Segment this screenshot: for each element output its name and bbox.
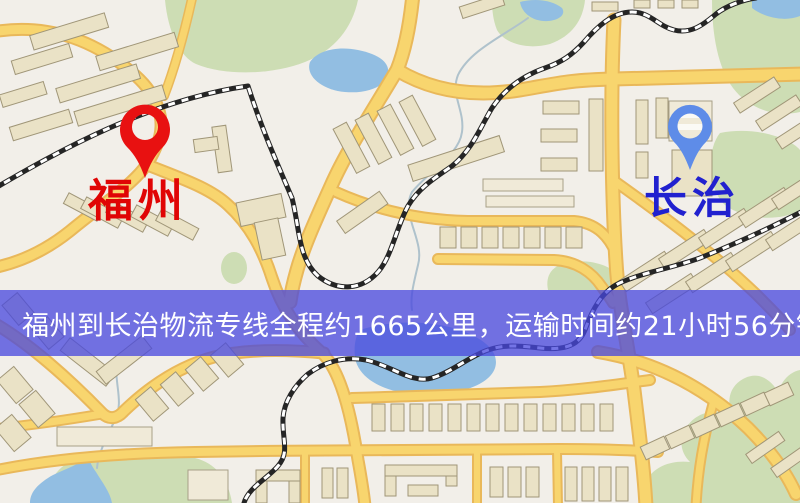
origin-city-label: 福州: [88, 178, 188, 223]
route-info-banner: 福州到长治物流专线全程约1665公里，运输时间约21小时56分钟.: [0, 290, 800, 356]
logistics-route-map: 福州到长治物流专线全程约1665公里，运输时间约21小时56分钟. 福州 长治: [0, 0, 800, 503]
map-canvas: [0, 0, 800, 503]
destination-city-label: 长治: [644, 178, 740, 221]
route-info-text: 福州到长治物流专线全程约1665公里，运输时间约21小时56分钟.: [22, 304, 800, 343]
